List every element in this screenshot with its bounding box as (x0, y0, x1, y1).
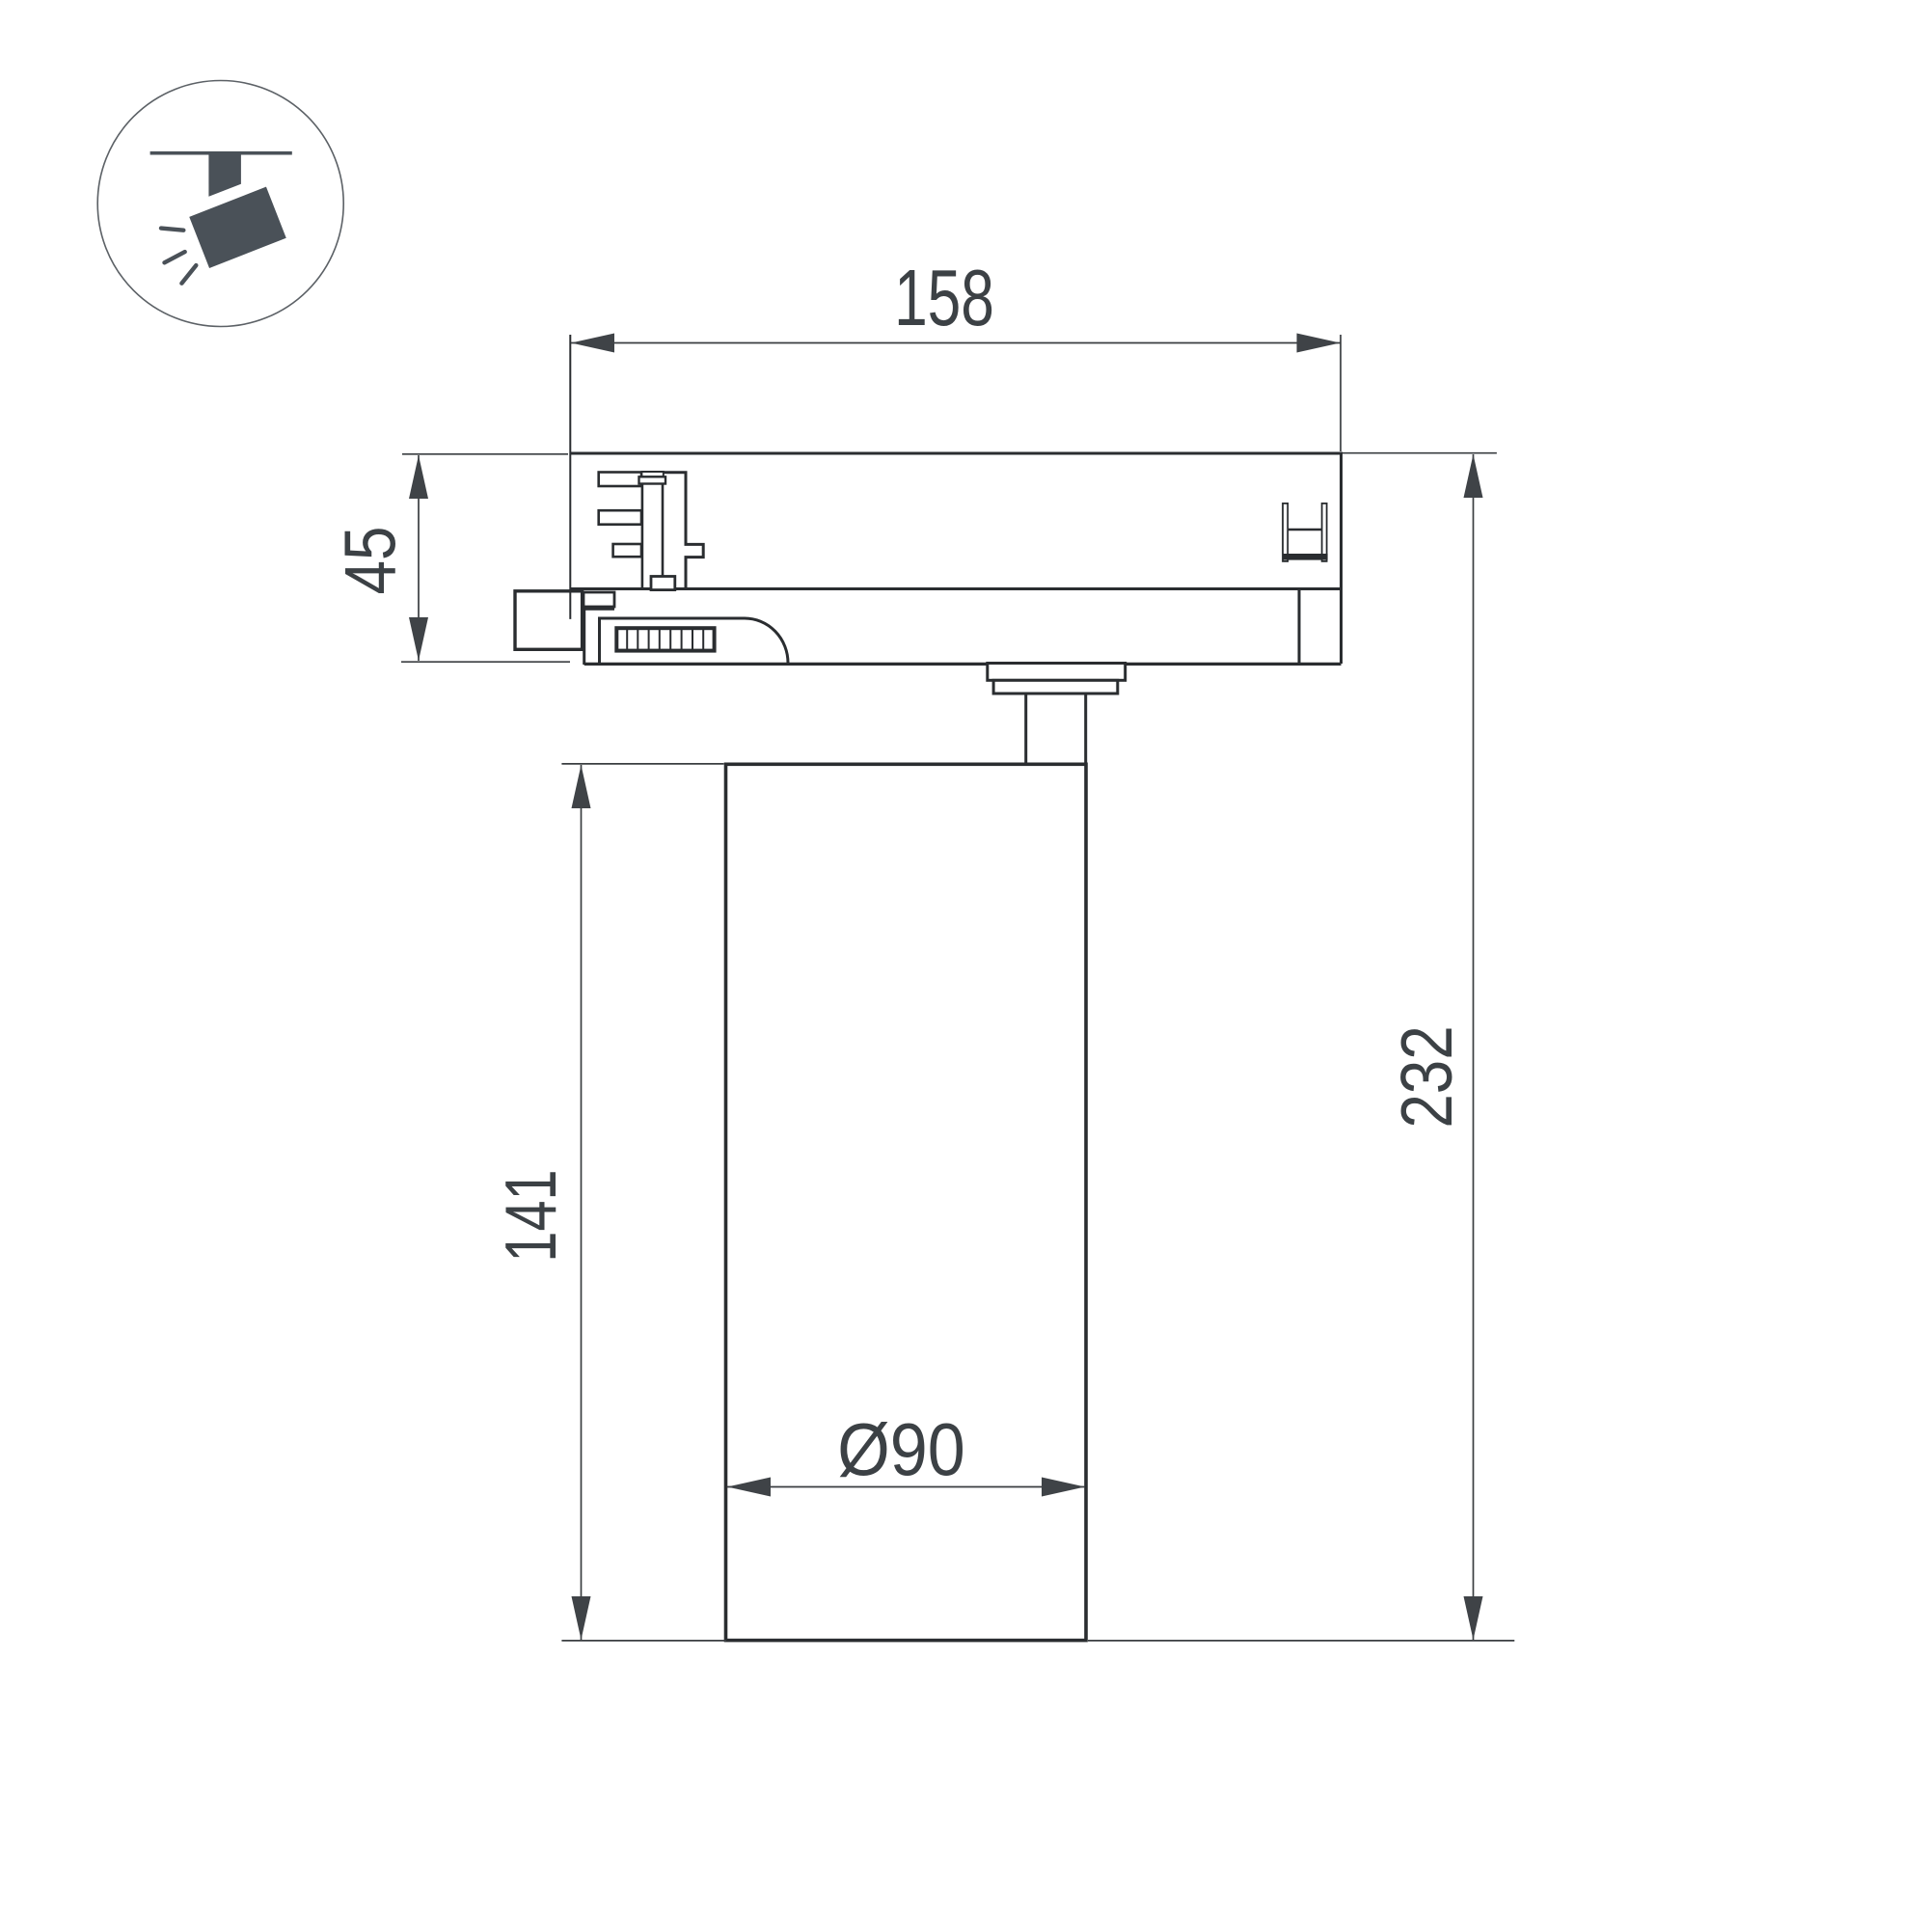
svg-text:232: 232 (1386, 1025, 1467, 1128)
svg-text:141: 141 (491, 1169, 572, 1262)
svg-text:Ø90: Ø90 (837, 1407, 964, 1491)
svg-text:45: 45 (330, 527, 411, 595)
svg-text:158: 158 (894, 253, 994, 342)
